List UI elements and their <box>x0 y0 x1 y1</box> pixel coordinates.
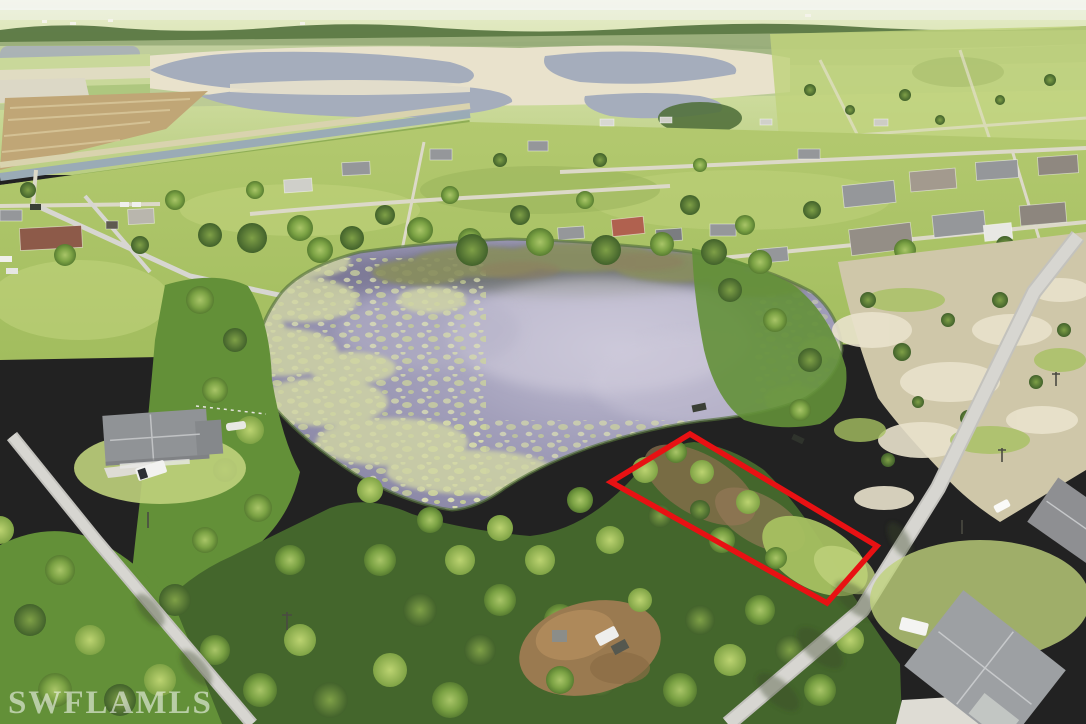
aerial-photo: SWFLAMLS <box>0 0 1086 724</box>
distant-fields-right <box>770 26 1086 150</box>
shed <box>552 630 567 642</box>
house <box>19 225 82 250</box>
bottom-right-parcels <box>870 478 1086 724</box>
house <box>611 216 645 236</box>
aerial-photo-canvas <box>0 0 1086 724</box>
parked-vehicle <box>791 434 804 445</box>
watermark: SWFLAMLS <box>8 687 213 720</box>
